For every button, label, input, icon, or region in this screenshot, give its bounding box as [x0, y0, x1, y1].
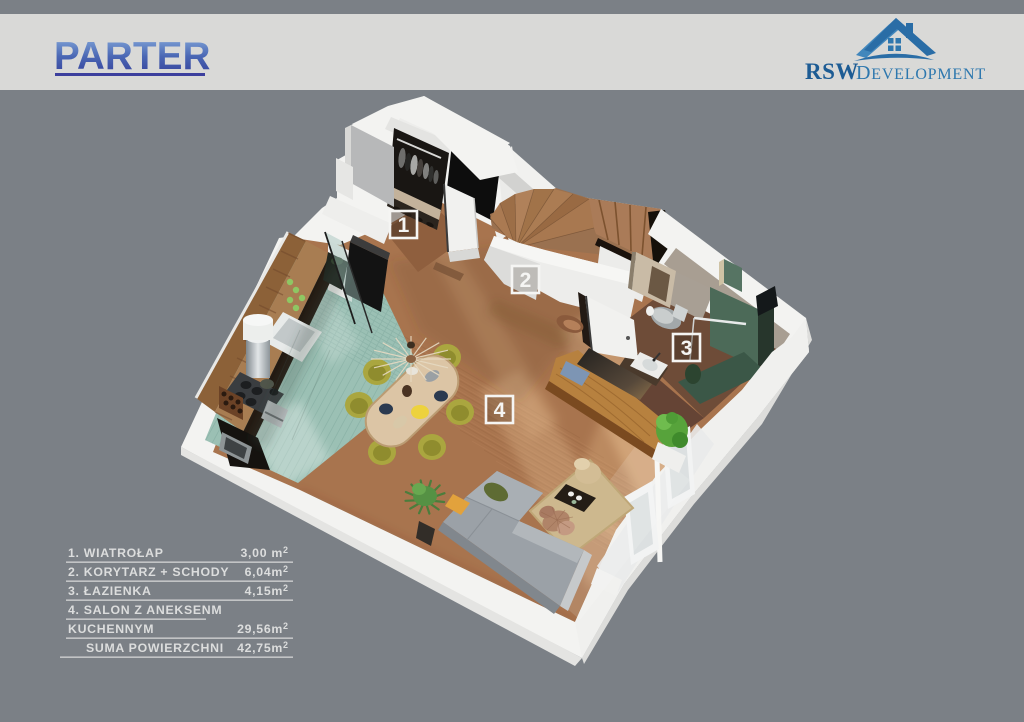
- svg-text:4: 4: [494, 399, 506, 422]
- svg-text:2. KORYTARZ + SCHODY: 2. KORYTARZ + SCHODY: [68, 565, 229, 579]
- svg-text:DEVELOPMENT: DEVELOPMENT: [856, 62, 986, 84]
- svg-text:SUMA POWIERZCHNI: SUMA POWIERZCHNI: [86, 641, 224, 655]
- svg-text:3,00 m: 3,00 m: [241, 546, 283, 560]
- svg-text:2: 2: [520, 269, 532, 292]
- svg-text:2: 2: [283, 564, 289, 574]
- svg-text:29,56m: 29,56m: [237, 622, 283, 636]
- svg-text:2: 2: [283, 545, 289, 555]
- svg-text:3. ŁAZIENKA: 3. ŁAZIENKA: [68, 584, 152, 598]
- svg-text:4,15m: 4,15m: [245, 584, 283, 598]
- svg-text:4. SALON Z ANEKSENM: 4. SALON Z ANEKSENM: [68, 603, 222, 617]
- svg-text:1. WIATROŁAP: 1. WIATROŁAP: [68, 546, 164, 560]
- svg-text:42,75m: 42,75m: [237, 641, 283, 655]
- svg-text:1: 1: [398, 214, 410, 237]
- svg-text:KUCHENNYM: KUCHENNYM: [68, 622, 154, 636]
- svg-text:2: 2: [283, 583, 289, 593]
- svg-text:RSW: RSW: [805, 59, 859, 84]
- svg-text:6,04m: 6,04m: [245, 565, 283, 579]
- svg-text:2: 2: [283, 621, 289, 631]
- svg-text:3: 3: [681, 337, 693, 360]
- svg-text:2: 2: [283, 640, 289, 650]
- svg-text:PARTER: PARTER: [54, 35, 211, 78]
